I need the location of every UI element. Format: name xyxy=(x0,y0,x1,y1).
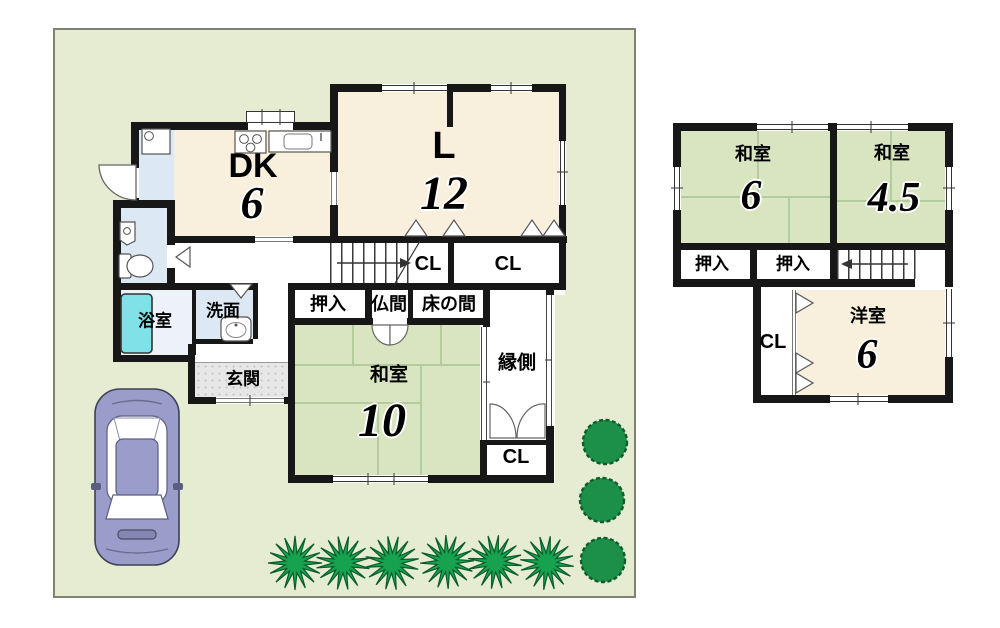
wall xyxy=(908,123,953,131)
wall xyxy=(487,440,547,445)
room-label-oshiire-left: 押入 xyxy=(695,256,729,273)
room-size-living: 12 xyxy=(420,170,468,218)
window xyxy=(946,167,952,210)
entrance-step xyxy=(216,398,284,403)
wall xyxy=(330,92,338,172)
wall xyxy=(673,131,681,167)
wall xyxy=(196,339,253,344)
stairs-1f xyxy=(330,243,414,283)
wall xyxy=(945,131,953,167)
room-label-tokonoma: 床の間 xyxy=(422,295,476,313)
room-label-washitsu-6: 和室 xyxy=(735,145,771,163)
wall xyxy=(113,283,258,290)
room-label-washroom: 洗面 xyxy=(206,303,240,320)
room-label-washitsu-45: 和室 xyxy=(874,144,910,162)
wall xyxy=(447,84,453,127)
room-toilet xyxy=(121,208,167,283)
closet-folding-door-track xyxy=(792,290,796,395)
window xyxy=(946,289,952,357)
room-label-washitsu-10: 和室 xyxy=(370,366,408,385)
room-label-oshiire-right: 押入 xyxy=(776,256,810,273)
tatami-line xyxy=(420,364,422,475)
wall xyxy=(113,355,195,362)
wall xyxy=(330,84,382,92)
wall xyxy=(830,123,837,250)
room-label-oshiire: 押入 xyxy=(310,295,346,313)
room-label-engawa: 縁側 xyxy=(498,354,536,373)
window xyxy=(757,124,828,130)
wall xyxy=(167,268,175,283)
wall xyxy=(407,318,487,325)
wall xyxy=(559,84,566,141)
wall xyxy=(188,344,195,404)
room-size-washitsu-45: 4.5 xyxy=(868,177,921,219)
room-label-entrance: 玄関 xyxy=(226,371,260,388)
wall xyxy=(288,283,565,290)
engawa-sliding-wall xyxy=(546,295,552,426)
wall xyxy=(546,283,554,295)
sliding-door xyxy=(255,237,293,242)
wall xyxy=(945,357,953,403)
kitchen-bay-window xyxy=(246,111,295,123)
room-size-washitsu-10: 10 xyxy=(358,397,406,445)
window xyxy=(333,476,428,482)
tatami-line xyxy=(788,196,790,243)
room-size-washitsu-6: 6 xyxy=(741,175,762,217)
wall xyxy=(480,440,487,483)
wall xyxy=(673,279,915,287)
window xyxy=(491,85,532,91)
room-label-closet-stairs: CL xyxy=(415,254,442,274)
room-label-closet-2f: CL xyxy=(760,332,787,352)
tatami-line xyxy=(352,325,354,365)
window xyxy=(382,85,447,91)
wall xyxy=(448,243,454,283)
room-label-closet-living: CL xyxy=(495,254,522,274)
tatami-line xyxy=(440,325,442,365)
wall xyxy=(288,325,295,482)
window xyxy=(560,141,565,205)
floor-plan-page: DK 6 L 12 CL CL 押入 仏間 床の間 和室 10 縁側 CL 浴室… xyxy=(0,0,1000,628)
wall xyxy=(253,283,258,339)
engawa-sliding-wall xyxy=(481,327,487,440)
wall xyxy=(113,200,175,208)
wall xyxy=(447,84,491,92)
stairs-2f xyxy=(837,250,917,279)
wall xyxy=(753,395,830,403)
wall xyxy=(559,205,566,290)
wall xyxy=(293,236,338,243)
wall xyxy=(338,236,567,243)
window xyxy=(674,167,680,210)
room-size-dk: 6 xyxy=(241,180,264,226)
window xyxy=(830,396,888,402)
wall xyxy=(428,475,488,483)
room-label-closet-engawa: CL xyxy=(503,447,530,467)
wall xyxy=(131,122,139,168)
wall xyxy=(167,208,175,245)
room-label-yoshitsu: 洋室 xyxy=(850,307,886,325)
wall xyxy=(173,236,255,243)
room-label-bathroom: 浴室 xyxy=(138,313,172,330)
wall xyxy=(288,318,373,325)
dk-service-nook xyxy=(139,130,174,200)
sliding-door xyxy=(331,172,337,205)
wall xyxy=(288,475,333,483)
wall xyxy=(673,243,953,250)
wall xyxy=(673,123,757,131)
room-label-living: L xyxy=(432,127,455,165)
wall xyxy=(131,122,248,130)
room-size-yoshitsu: 6 xyxy=(857,334,878,376)
window xyxy=(836,124,908,130)
wall xyxy=(487,475,553,483)
room-label-butsuma: 仏間 xyxy=(371,295,407,313)
wall xyxy=(188,397,216,404)
wall xyxy=(888,395,953,403)
